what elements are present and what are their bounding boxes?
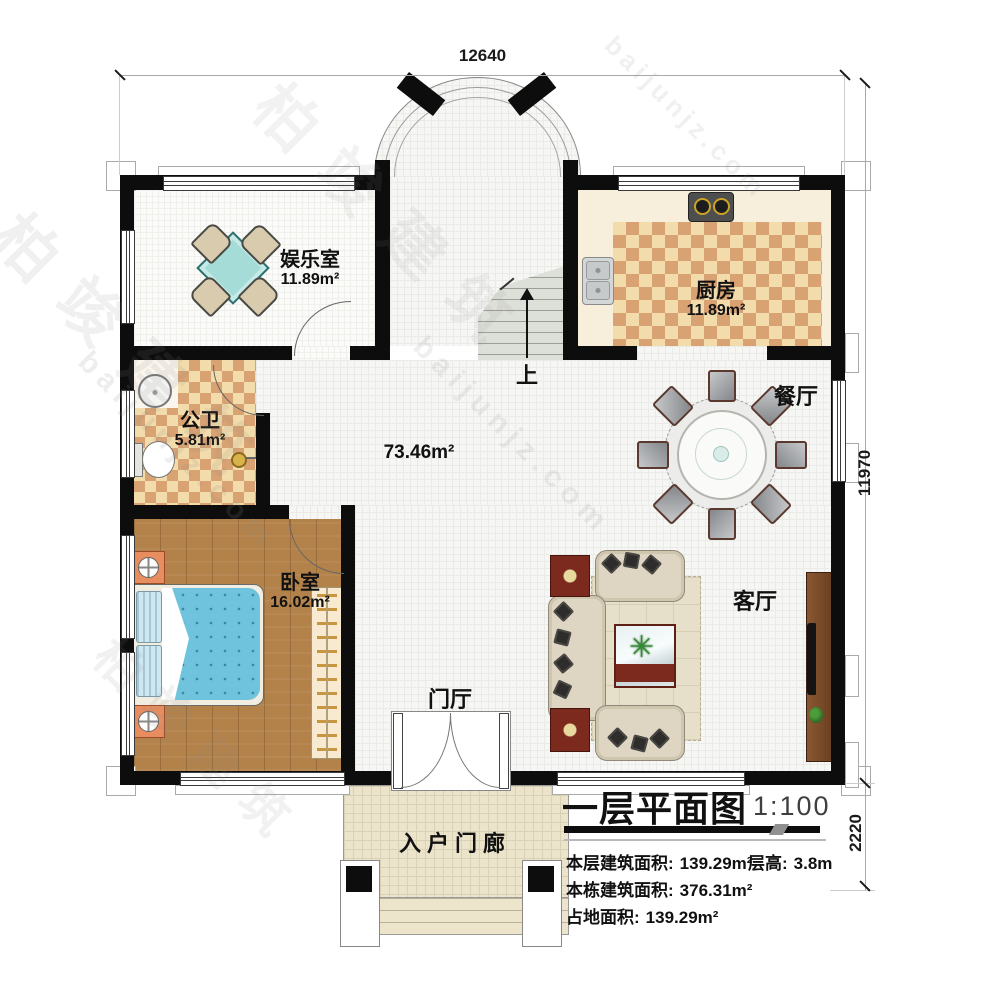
end-table — [550, 555, 590, 597]
room-name: 厨房 — [656, 280, 776, 302]
sink-basin — [586, 261, 610, 280]
floor-drain — [231, 452, 247, 468]
title-underline-thin — [564, 839, 826, 841]
wall-segment — [350, 346, 390, 360]
kitchen-opening — [637, 346, 767, 360]
dimension-text-right: 11970 — [855, 433, 875, 513]
room-label-bathroom: 公卫 5.81m² — [148, 410, 252, 450]
dining-chair — [637, 441, 669, 469]
plant: ✳ — [629, 633, 659, 663]
storey-height-row: 层高:3.8m — [748, 849, 838, 874]
room-label-entertainment: 娱乐室 11.89m² — [245, 249, 375, 289]
porch-column — [346, 866, 372, 892]
room-area: 11.89m² — [656, 302, 776, 320]
pillow — [136, 645, 162, 697]
building-area-value: 376.31m² — [680, 881, 753, 900]
room-label-porch: 入户门廊 — [382, 826, 528, 858]
sofa — [595, 705, 685, 761]
room-label-dining: 餐厅 — [762, 379, 830, 411]
wall-segment — [256, 413, 270, 505]
pillow — [136, 591, 162, 643]
room-label-kitchen: 厨房 11.89m² — [656, 280, 776, 320]
wall-segment — [565, 346, 637, 360]
room-area: 16.02m² — [238, 594, 362, 612]
pilaster — [845, 655, 859, 697]
stove-burner — [713, 198, 730, 215]
floor-area-label: 本层建筑面积: — [566, 854, 674, 873]
room-area: 11.89m² — [245, 271, 375, 289]
room-name: 娱乐室 — [245, 249, 375, 271]
storey-height-label: 层高: — [748, 854, 788, 873]
dimension-line-top — [120, 75, 845, 76]
dining-chair — [708, 370, 736, 402]
plant — [809, 707, 823, 723]
building-area-row: 本栋建筑面积:376.31m² — [566, 876, 758, 901]
footprint-area-value: 139.29m² — [646, 908, 719, 927]
floor-plan: ✳ 娱乐室 11.89m² 厨房 11.89m² 公卫 5.81m² 卧室 16… — [0, 0, 1000, 990]
window — [121, 652, 135, 756]
end-table — [550, 708, 590, 752]
drawing-title: 一层平面图 — [562, 780, 747, 832]
lazy-susan — [713, 446, 729, 462]
hall-area-label: 73.46m² — [357, 442, 481, 463]
window — [180, 772, 345, 786]
wall-segment — [767, 346, 845, 360]
stair-arrow-head — [520, 288, 534, 300]
corner-quoin — [841, 161, 871, 191]
sofa-pillow — [623, 552, 640, 569]
room-area: 5.81m² — [148, 432, 252, 450]
stairs-up-label: 上 — [514, 358, 540, 390]
room-label-living: 客厅 — [717, 584, 793, 616]
wall-segment — [375, 160, 390, 360]
dining-chair — [775, 441, 807, 469]
wardrobe — [311, 587, 343, 759]
tv — [807, 623, 816, 695]
room-name: 公卫 — [148, 410, 252, 432]
extension-line — [119, 76, 120, 175]
room-label-foyer: 门厅 — [412, 682, 488, 714]
pilaster — [845, 742, 859, 788]
wall-segment — [563, 160, 578, 360]
window — [163, 176, 355, 191]
stove-burner — [694, 198, 711, 215]
lamp — [138, 557, 159, 578]
dimension-text-top: 12640 — [435, 46, 530, 66]
floor-area-row: 本层建筑面积:139.29m² — [566, 849, 758, 874]
window — [121, 390, 135, 478]
window-sill — [175, 785, 350, 795]
storey-height-value: 3.8m — [794, 854, 833, 873]
room-area: 73.46m² — [357, 442, 481, 463]
room-name: 卧室 — [238, 572, 362, 594]
window — [121, 230, 135, 324]
pilaster — [845, 333, 859, 373]
building-area-label: 本栋建筑面积: — [566, 881, 674, 900]
room-label-bedroom: 卧室 16.02m² — [238, 572, 362, 612]
porch-column — [528, 866, 554, 892]
extension-line — [845, 783, 875, 784]
footprint-area-label: 占地面积: — [566, 908, 640, 927]
lamp — [138, 711, 159, 732]
window — [618, 176, 800, 191]
stair-arrow-line — [526, 298, 528, 358]
wall-segment — [120, 505, 289, 519]
extension-line — [844, 76, 845, 175]
sink-basin — [586, 281, 610, 300]
bedroom-door-opening — [289, 505, 345, 519]
wall-segment — [120, 346, 292, 360]
dimension-text-right-lower: 2220 — [846, 793, 866, 873]
window — [832, 380, 846, 482]
bathroom-sink — [138, 374, 172, 408]
dining-chair — [708, 508, 736, 540]
footprint-area-row: 占地面积:139.29m² — [566, 903, 724, 928]
drawing-scale: 1:100 — [753, 791, 831, 822]
floor-area-value: 139.29m² — [680, 854, 753, 873]
entry-door-leaf — [499, 713, 509, 789]
window — [121, 535, 135, 639]
